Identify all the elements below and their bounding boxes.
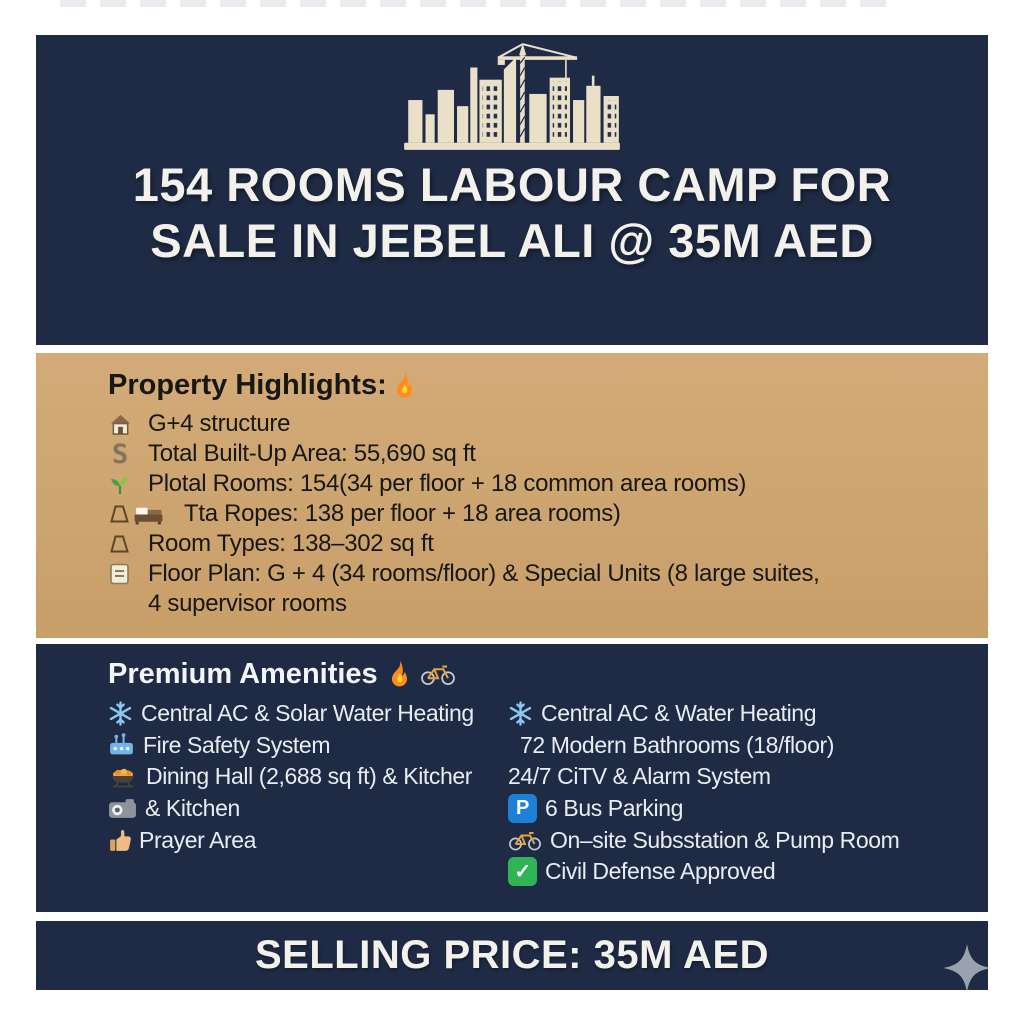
flame-icon: [386, 660, 412, 690]
fire-safety-icon: [108, 733, 135, 758]
amenity-row: Fire Safety System 72 Modern Bathrooms (…: [36, 730, 988, 762]
highlight-item: Plotal Rooms: 154(34 per floor + 18 comm…: [108, 469, 948, 499]
amenity-row: Dining Hall (2,688 sq ft) & Kitcher 24/7…: [36, 761, 988, 793]
amenity-item: 72 Modern Bathrooms (18/floor): [508, 730, 834, 762]
house-icon: [108, 413, 133, 436]
city-skyline-crane-icon: [397, 39, 627, 155]
amenity-item: Prayer Area: [108, 824, 256, 856]
amenity-row: & Kitchen 6 Bus Parking: [36, 793, 988, 825]
cropped-text-artifact: [60, 0, 890, 7]
property-highlights-section: Property Highlights: G+4 structure S: [36, 353, 988, 638]
amenity-row: Civil Defense Approved: [36, 856, 988, 888]
highlight-item: Floor Plan: G + 4 (34 rooms/floor) & Spe…: [108, 559, 948, 619]
highlights-list: G+4 structure S Total Built-Up Area: 55,…: [108, 409, 948, 619]
selling-price-text: SELLING PRICE: 35M AED: [36, 921, 988, 990]
thumbs-up-icon: [108, 828, 131, 853]
bed-icon: [133, 504, 164, 525]
amenity-item: Central AC & Solar Water Heating: [108, 698, 474, 730]
snowflake-icon: [108, 701, 133, 726]
highlight-item: Room Types: 138–302 sq ft: [108, 529, 948, 559]
highlights-heading: Property Highlights:: [108, 369, 417, 402]
camera-icon: [108, 798, 137, 819]
header-banner: 154 ROOMS LABOUR CAMP FOR SALE IN JEBEL …: [36, 35, 988, 345]
premium-amenities-section: Premium Amenities: [36, 644, 988, 912]
amenity-row: Prayer Area On–site Subsstation & Pump R…: [36, 824, 988, 856]
check-icon: [508, 857, 537, 886]
s-icon: S: [108, 441, 132, 468]
amenity-item: Dining Hall (2,688 sq ft) & Kitcher: [108, 761, 472, 793]
amenities-grid: Central AC & Solar Water Heating Central…: [36, 698, 988, 888]
amenity-item: 6 Bus Parking: [508, 793, 683, 825]
note-icon: [108, 562, 131, 586]
highlight-item: G+4 structure: [108, 409, 948, 439]
amenity-item: Civil Defense Approved: [508, 856, 775, 888]
parking-icon: [508, 794, 537, 823]
dining-icon: [108, 765, 138, 788]
selling-price-banner: SELLING PRICE: 35M AED: [36, 921, 988, 990]
highlight-item: Tta Ropes: 138 per floor + 18 area rooms…: [108, 499, 948, 529]
labour-camp-sale-poster: 154 ROOMS LABOUR CAMP FOR SALE IN JEBEL …: [0, 0, 1024, 1024]
amenity-row: Central AC & Solar Water Heating Central…: [36, 698, 988, 730]
title-line-2: SALE IN JEBEL ALI @ 35M AED: [36, 213, 988, 269]
seedling-icon: [108, 472, 132, 496]
amenity-item: Central AC & Water Heating: [508, 698, 816, 730]
snowflake-icon: [508, 701, 533, 726]
amenity-item: & Kitchen: [108, 793, 240, 825]
amenities-heading: Premium Amenities: [108, 658, 456, 691]
poster-title: 154 ROOMS LABOUR CAMP FOR SALE IN JEBEL …: [36, 157, 988, 269]
trapezoid-icon: [108, 533, 130, 555]
amenity-item: On–site Subsstation & Pump Room: [508, 824, 899, 856]
trapezoid-icon: [108, 503, 130, 525]
amenity-item: Fire Safety System: [108, 730, 330, 762]
bicycle-icon: [508, 830, 542, 851]
bicycle-icon: [420, 663, 456, 686]
flame-icon: [391, 371, 417, 401]
highlight-item: S Total Built-Up Area: 55,690 sq ft: [108, 439, 948, 469]
sparkle-icon: [941, 942, 988, 990]
title-line-1: 154 ROOMS LABOUR CAMP FOR: [36, 157, 988, 213]
amenity-item: 24/7 CiTV & Alarm System: [508, 761, 771, 793]
